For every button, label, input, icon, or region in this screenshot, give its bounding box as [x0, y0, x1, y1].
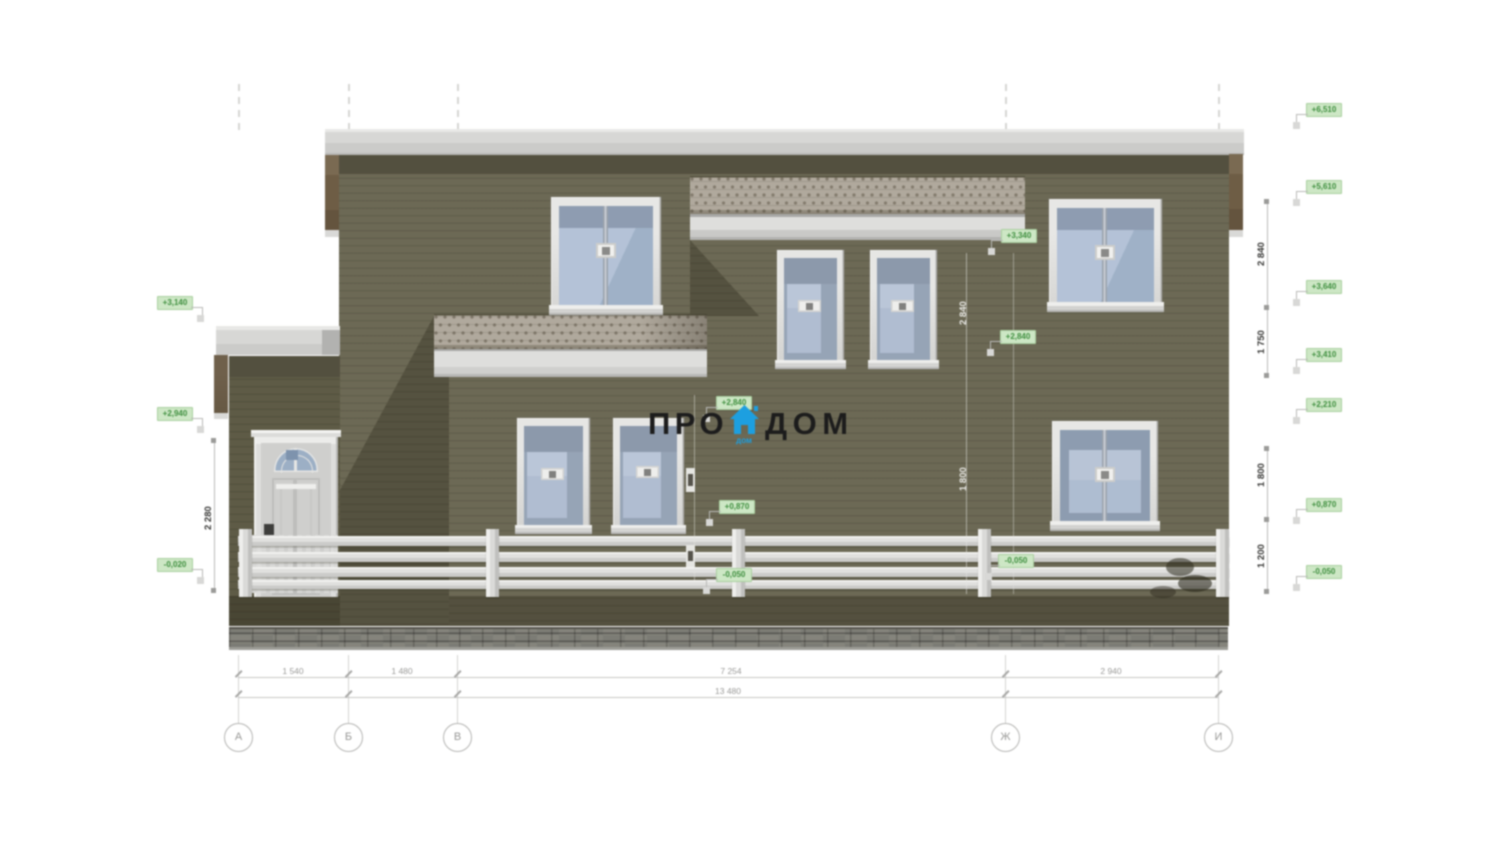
svg-text:дом: дом	[736, 436, 752, 445]
